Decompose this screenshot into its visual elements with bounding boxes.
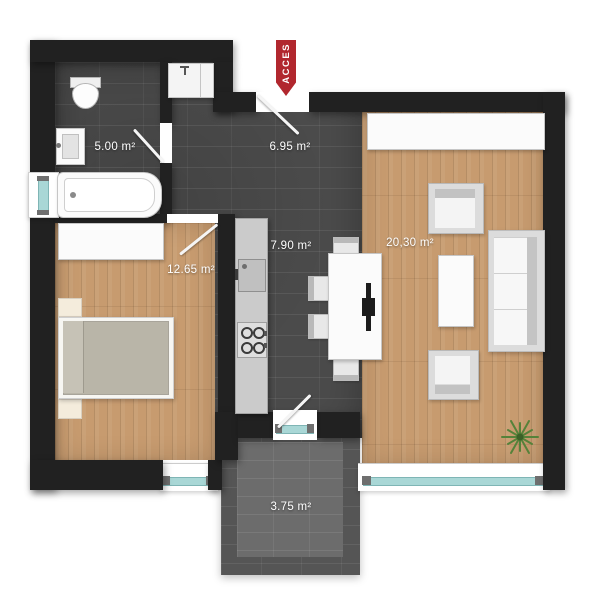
window-cap xyxy=(37,210,49,215)
window-cap xyxy=(307,424,314,433)
armchair-bottom xyxy=(428,350,479,400)
sideboard xyxy=(367,113,545,150)
toilet xyxy=(69,77,102,108)
plant xyxy=(500,417,540,457)
wall-kitchen-bottom-left xyxy=(238,412,273,438)
nightstand-top xyxy=(58,298,82,317)
wall-bottom-left xyxy=(30,460,163,490)
stove-4-burners xyxy=(237,322,267,358)
armchair-top xyxy=(428,183,484,234)
bathroom-sink xyxy=(56,128,85,165)
table-centerpiece xyxy=(362,298,375,316)
balcony-inner-panel xyxy=(237,442,343,557)
wall-top-right xyxy=(309,92,565,112)
wall-bedroom-kitchen xyxy=(218,214,235,413)
window-cap xyxy=(37,176,49,181)
room-label-bedroom: 12.65 m² xyxy=(167,264,215,276)
hallway-closet xyxy=(168,63,214,98)
room-label-living-room: 20,30 m² xyxy=(386,237,434,249)
wall-entry-left xyxy=(213,92,256,112)
window-bathroom xyxy=(28,172,59,218)
window-living-room xyxy=(358,463,550,491)
wall-kitchen-bottom-right xyxy=(317,412,360,438)
floor-plan-canvas: ACCES 5.00 m² 6.95 m² 7.90 m² 12.65 m² 2… xyxy=(0,0,610,600)
window-bathroom-glass xyxy=(38,178,49,213)
window-cap xyxy=(162,476,170,485)
coffee-table xyxy=(438,255,474,327)
room-label-bathroom: 5.00 m² xyxy=(94,141,135,153)
kitchen-sink-unit xyxy=(238,259,266,292)
wardrobe xyxy=(58,223,164,260)
window-bedroom-glass xyxy=(163,477,211,486)
bedroom-door-opening xyxy=(167,214,218,223)
wall-top-left xyxy=(30,40,233,62)
room-label-hallway: 6.95 m² xyxy=(269,141,310,153)
dining-chair-bottom xyxy=(333,357,359,381)
wall-right xyxy=(543,92,565,490)
room-label-kitchen: 7.90 m² xyxy=(270,240,311,252)
window-cap xyxy=(362,476,371,485)
double-bed xyxy=(58,317,174,399)
wall-bottom-stub xyxy=(208,460,222,490)
nightstand-bottom xyxy=(58,399,82,419)
dining-table xyxy=(328,253,382,360)
bathtub xyxy=(57,172,162,218)
window-living-glass xyxy=(363,477,545,486)
wall-bedroom-corner xyxy=(215,412,238,460)
room-label-balcony: 3.75 m² xyxy=(270,501,311,513)
access-label: ACCES xyxy=(281,43,292,84)
kitchen-counter xyxy=(235,218,268,414)
sofa xyxy=(488,230,545,352)
wall-left xyxy=(30,40,55,490)
